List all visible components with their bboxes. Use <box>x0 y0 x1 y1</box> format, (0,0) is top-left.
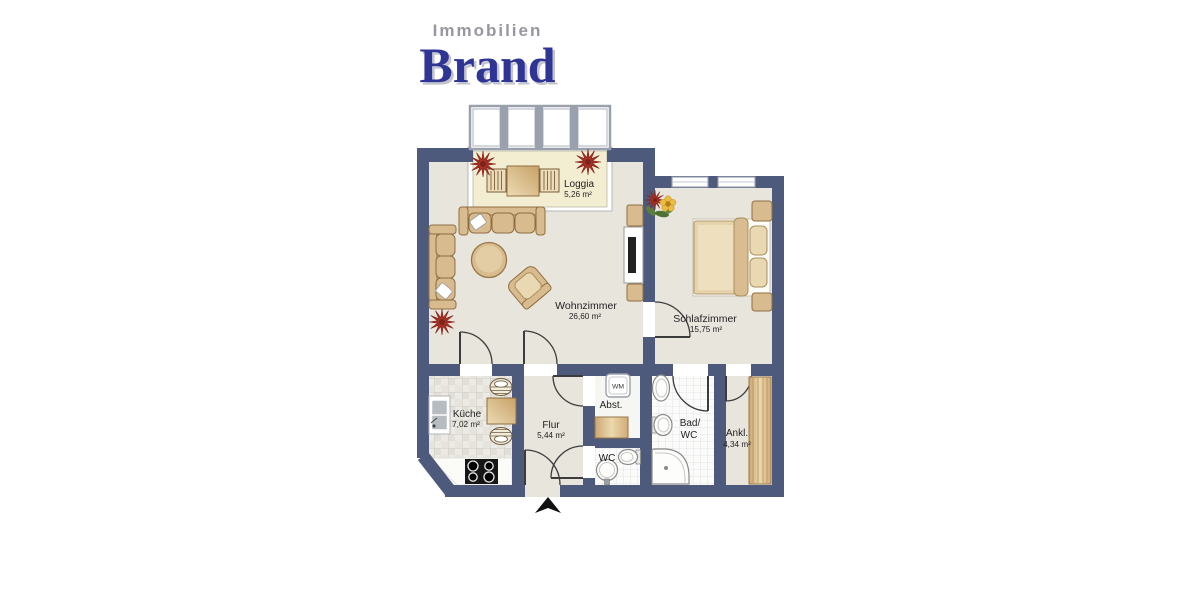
label-flur-area: 5,44 m² <box>537 431 565 440</box>
coffee-table <box>472 243 507 278</box>
wardrobe <box>749 377 771 484</box>
label-flur: Flur <box>542 420 560 431</box>
stove <box>465 459 498 484</box>
washing-machine-label: WM <box>612 384 624 391</box>
tv-screen <box>628 237 636 273</box>
label-schlafzimmer-area: 15,75 m² <box>690 325 723 334</box>
sofa-vertical <box>429 225 456 309</box>
bed-pillow <box>750 258 767 287</box>
sofa-horizontal <box>459 207 545 235</box>
nightstand-bottom <box>752 293 772 311</box>
label-bad-line2: WC <box>681 430 698 441</box>
loggia-window <box>470 106 610 149</box>
label-ankleide: Ankl. <box>726 428 748 439</box>
entrance-threshold <box>525 485 560 497</box>
kitchen-chair <box>490 379 512 396</box>
kitchen-table <box>487 398 516 424</box>
bed-pillow <box>750 226 767 255</box>
loggia-chair-right <box>540 169 559 192</box>
bad-toilet <box>652 415 672 436</box>
label-kueche: Küche <box>453 409 482 420</box>
label-abstellraum: Abst. <box>600 400 623 411</box>
schlafzimmer-window-1 <box>672 177 708 187</box>
washing-machine: WM <box>606 374 630 397</box>
schlafzimmer-window-2 <box>718 177 755 187</box>
tv-unit <box>624 205 643 301</box>
abstellraum-shelf <box>595 417 628 438</box>
page: Immobilien Brand <box>0 0 1200 600</box>
wc-toilet <box>619 450 641 465</box>
label-schlafzimmer: Schlafzimmer <box>673 313 737 325</box>
floor-plan: WM <box>0 0 1200 600</box>
label-wohnzimmer-area: 26,60 m² <box>569 312 602 321</box>
nightstand-top <box>752 201 772 221</box>
label-loggia-area: 5,26 m² <box>564 190 592 199</box>
double-bed <box>693 218 770 296</box>
kitchen-sink <box>429 396 450 434</box>
label-bad-line1: Bad/ <box>680 418 701 429</box>
label-wohnzimmer: Wohnzimmer <box>555 300 617 312</box>
entrance-arrow <box>535 497 561 513</box>
label-ankleide-area: 4,34 m² <box>723 440 751 449</box>
loggia-chair-left <box>487 169 506 192</box>
label-kueche-area: 7,02 m² <box>452 420 480 429</box>
loggia-table <box>507 166 539 196</box>
label-loggia: Loggia <box>564 179 594 190</box>
bad-sink <box>652 375 670 401</box>
label-wc: WC <box>599 453 616 464</box>
kitchen-chair <box>490 428 512 445</box>
